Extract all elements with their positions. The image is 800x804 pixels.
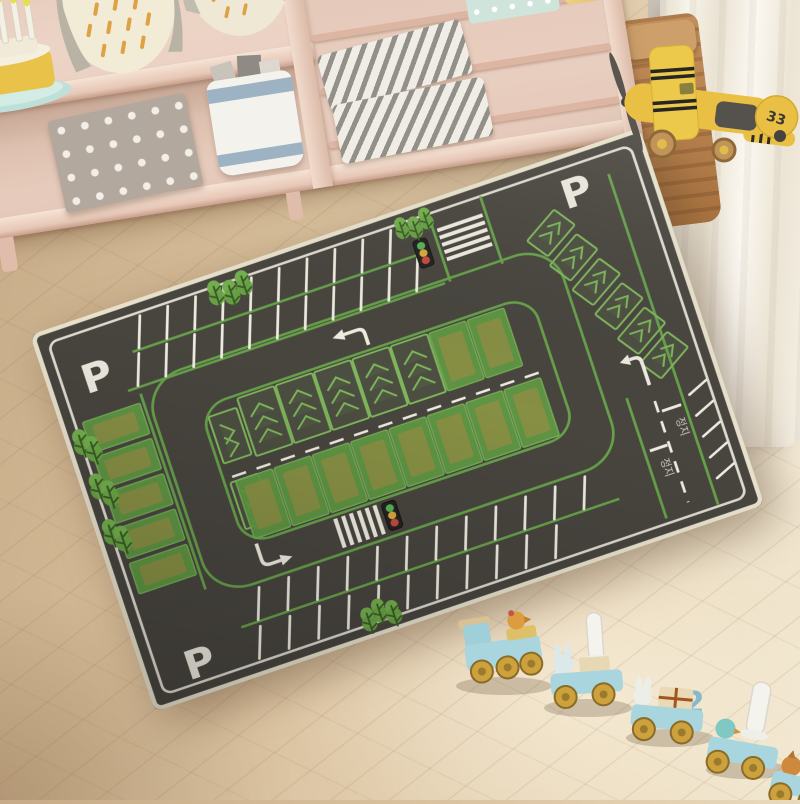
- train-locomotive: [457, 606, 545, 684]
- toy-jar-with-blocks: [205, 69, 306, 181]
- candle: [586, 612, 604, 661]
- toy-airplane: 33: [596, 14, 800, 174]
- duck-beak: [524, 615, 532, 623]
- shelf-leg: [286, 191, 304, 221]
- engine-block: [714, 101, 759, 132]
- train-wagon-1: [546, 611, 624, 709]
- train-shadows: [456, 677, 790, 779]
- cockpit-window: [679, 83, 694, 95]
- toy-train: 2: [452, 586, 800, 800]
- tail-wheel: [774, 130, 786, 142]
- wheel-hub: [720, 146, 729, 155]
- wheel-hub: [657, 139, 667, 149]
- bird-figure: [714, 717, 737, 740]
- candle: [745, 681, 772, 735]
- wing: [649, 45, 699, 142]
- shelf-leg: [0, 236, 18, 272]
